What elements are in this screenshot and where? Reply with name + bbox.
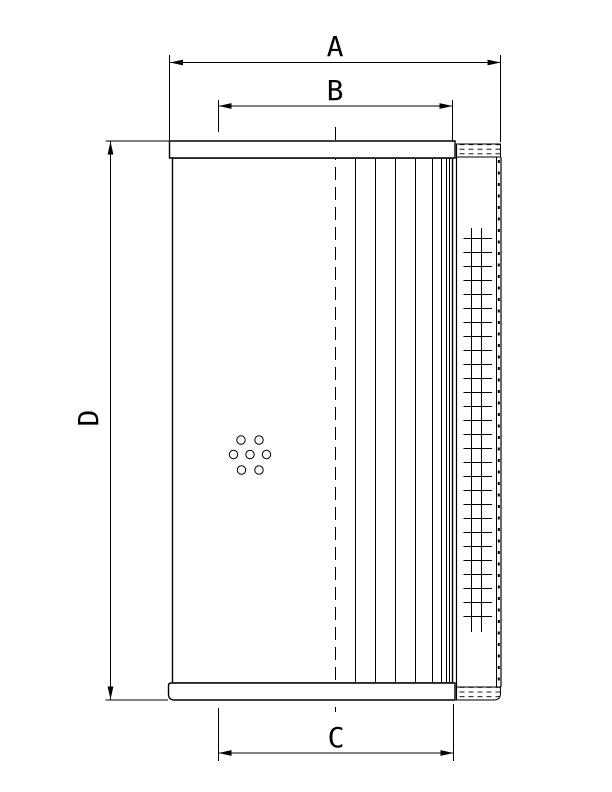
technical-drawing-page: A B C D: [0, 0, 612, 792]
seal-band-bottom: [457, 687, 501, 700]
support-mesh-rungs: [464, 232, 493, 618]
dimension-d-label: D: [72, 410, 105, 427]
dimension-c-label: C: [328, 721, 345, 754]
bottom-end-cap: [169, 683, 456, 700]
filter-element-drawing: A B C D: [0, 0, 612, 792]
filter-body: [173, 158, 453, 683]
dimension-b-label: B: [327, 74, 344, 107]
seal-band-top: [457, 144, 501, 157]
dimension-a-label: A: [327, 30, 344, 63]
top-end-cap: [170, 141, 456, 158]
